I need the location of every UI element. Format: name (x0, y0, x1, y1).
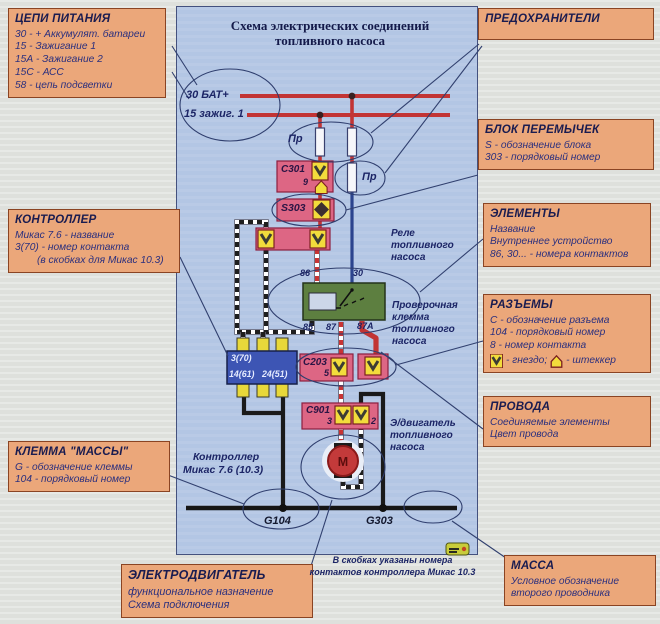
g303-label: G303 (366, 515, 393, 527)
relay-coil (309, 293, 336, 310)
fuel-pump-relay (303, 283, 385, 320)
callout-line: функциональное назначение (128, 586, 306, 600)
callout-title: ЭЛЕКТРОДВИГАТЕЛЬ (128, 568, 306, 584)
callout-line: 15С - АСС (15, 67, 159, 80)
relay-pin-85: 85 (303, 323, 313, 333)
controller-block (227, 338, 297, 397)
c301-pin-label: 9 (303, 178, 308, 188)
ground-dot-g104 (279, 504, 287, 512)
socket-contact-icon (353, 406, 369, 424)
callout-line: 30 - + Аккумулят. батареи (15, 29, 159, 42)
ctrl-pin-24-51: 24(51) (262, 370, 287, 380)
c901-label: С901 (306, 405, 330, 416)
publisher-badge (446, 543, 469, 555)
callout-line: 15 - Зажигание 1 (15, 41, 159, 54)
relay-name-l1: Реле (391, 228, 415, 239)
callout-line: Соединяемые элементы (490, 417, 644, 430)
callout-mass: МАССА Условное обозначение второго прово… (504, 555, 656, 606)
socket-contact-icon (331, 358, 347, 376)
c301-label: С301 (281, 164, 305, 175)
callout-line: С - обозначение разъема (490, 315, 644, 328)
fuse1-label: Пр (288, 133, 303, 145)
bus-15-label: 15 зажиг. 1 (184, 108, 244, 120)
ctrl-pin-14-61: 14(61) (229, 370, 254, 380)
callout-line: G - обозначение клеммы (15, 462, 163, 475)
callout-line: Название (490, 224, 644, 237)
motor-symbol: М (322, 440, 364, 482)
callout-line: 58 - цепь подсветки (15, 80, 159, 93)
socket-contact-icon (310, 230, 326, 248)
callout-line: 8 - номер контакта (490, 340, 644, 353)
socket-contact-icon (335, 406, 351, 424)
c203-pin-label: 5 (324, 369, 329, 379)
footnote-line1: В скобках указаны номера (305, 555, 480, 567)
callout-electric-motor: ЭЛЕКТРОДВИГАТЕЛЬ функциональное назначен… (121, 564, 313, 618)
callout-title: МАССА (511, 559, 649, 574)
callout-line: 15А - Зажигание 2 (15, 54, 159, 67)
callout-line: Условное обозначение (511, 576, 649, 589)
callout-line: 104 - порядковый номер (490, 327, 644, 340)
junction-dot (317, 112, 324, 119)
check-terminal-l4: насоса (392, 336, 426, 347)
c203-label: С203 (303, 357, 327, 368)
callout-line: 86, 30... - номера контактов (490, 249, 644, 262)
plug-legend-label: - штеккер (566, 355, 616, 368)
bus-30-label: 30 БАТ+ (186, 89, 229, 101)
relay-pin-87: 87 (326, 323, 336, 333)
callout-controller: КОНТРОЛЛЕР Микас 7.6 - название 3(70) - … (8, 209, 180, 273)
ctrl-pin-3-70: 3(70) (231, 354, 252, 364)
callout-line: 3(70) - номер контакта (15, 242, 173, 255)
check-terminal-l1: Проверочная (392, 300, 458, 311)
motor-name-l2: топливного (390, 430, 453, 441)
callout-wires: ПРОВОДА Соединяемые элементы Цвет провод… (483, 396, 651, 447)
callout-power-circuits: ЦЕПИ ПИТАНИЯ 30 - + Аккумулят. батареи 1… (8, 8, 166, 98)
callout-jumper-block: БЛОК ПЕРЕМЫЧЕК S - обозначение блока 303… (478, 119, 654, 170)
callout-elements: ЭЛЕМЕНТЫ Название Внутреннее устройство … (483, 203, 651, 267)
callout-line: второго проводника (511, 588, 649, 601)
socket-contact-icon (258, 230, 274, 248)
callout-title: ПРОВОДА (490, 400, 644, 415)
relay-pin-86: 86 (300, 269, 310, 279)
plug-contact-icon (550, 355, 563, 368)
s303-label: S303 (281, 203, 306, 215)
callout-title: КЛЕММА "МАССЫ" (15, 445, 163, 460)
callout-title: БЛОК ПЕРЕМЫЧЕК (485, 123, 647, 138)
motor-name-l3: насоса (390, 442, 424, 453)
callout-title: КОНТРОЛЛЕР (15, 213, 173, 228)
contact-legend-row: - гнездо; - штеккер (490, 354, 644, 368)
motor-letter: М (338, 455, 348, 469)
callout-title: ЦЕПИ ПИТАНИЯ (15, 12, 159, 27)
callout-line: Схема подключения (128, 599, 306, 613)
ground-dot-g303 (379, 504, 387, 512)
callout-line: (в скобках для Микас 10.3) (15, 255, 173, 268)
motor-name-l1: Э/двигатель (390, 418, 456, 429)
callout-title: РАЗЪЕМЫ (490, 298, 644, 313)
check-terminal-l3: топливного (392, 324, 455, 335)
relay-name-l2: топливного (391, 240, 454, 251)
socket-contact-icon (312, 162, 328, 180)
callout-ground-clamp: КЛЕММА "МАССЫ" G - обозначение клеммы 10… (8, 441, 170, 492)
manual-page: М (0, 0, 660, 624)
relay-pin-30: 30 (353, 269, 363, 279)
ctrl-name-l2: Микас 7.6 (10.3) (183, 465, 263, 477)
callout-line: Микас 7.6 - название (15, 230, 173, 243)
diagram-title-line1: Схема электрических соединений (190, 18, 470, 34)
callout-line: Цвет провода (490, 429, 644, 442)
footnote: В скобках указаны номера контактов контр… (305, 555, 480, 578)
diagram-title-line2: топливного насоса (190, 33, 470, 49)
callout-connectors: РАЗЪЕМЫ С - обозначение разъема 104 - по… (483, 294, 651, 373)
g104-label: G104 (264, 515, 291, 527)
c901-pin2-label: 2 (371, 417, 376, 427)
socket-legend-label: - гнездо; (506, 355, 547, 368)
callout-line: Внутреннее устройство (490, 236, 644, 249)
relay-name-l3: насоса (391, 252, 425, 263)
callout-title: ЭЛЕМЕНТЫ (490, 207, 644, 222)
callout-title: ПРЕДОХРАНИТЕЛИ (485, 12, 647, 27)
footnote-line2: контактов контроллера Микас 10.3 (305, 567, 480, 579)
ctrl-name-l1: Контроллер (193, 452, 259, 464)
test-terminal (358, 354, 388, 379)
callout-line: 303 - порядковый номер (485, 152, 647, 165)
fuse2-label: Пр (362, 171, 377, 183)
callout-fuses: ПРЕДОХРАНИТЕЛИ (478, 8, 654, 40)
junction-dot (349, 93, 356, 100)
socket-contact-icon (490, 354, 503, 368)
connector-double-socket (256, 228, 330, 250)
socket-contact-icon (365, 357, 381, 375)
callout-line: S - обозначение блока (485, 140, 647, 153)
check-terminal-l2: клемма (392, 312, 429, 323)
c901-pin3-label: 3 (327, 417, 332, 427)
relay-pin-87a: 87А (357, 322, 374, 332)
callout-line: 104 - порядковый номер (15, 474, 163, 487)
